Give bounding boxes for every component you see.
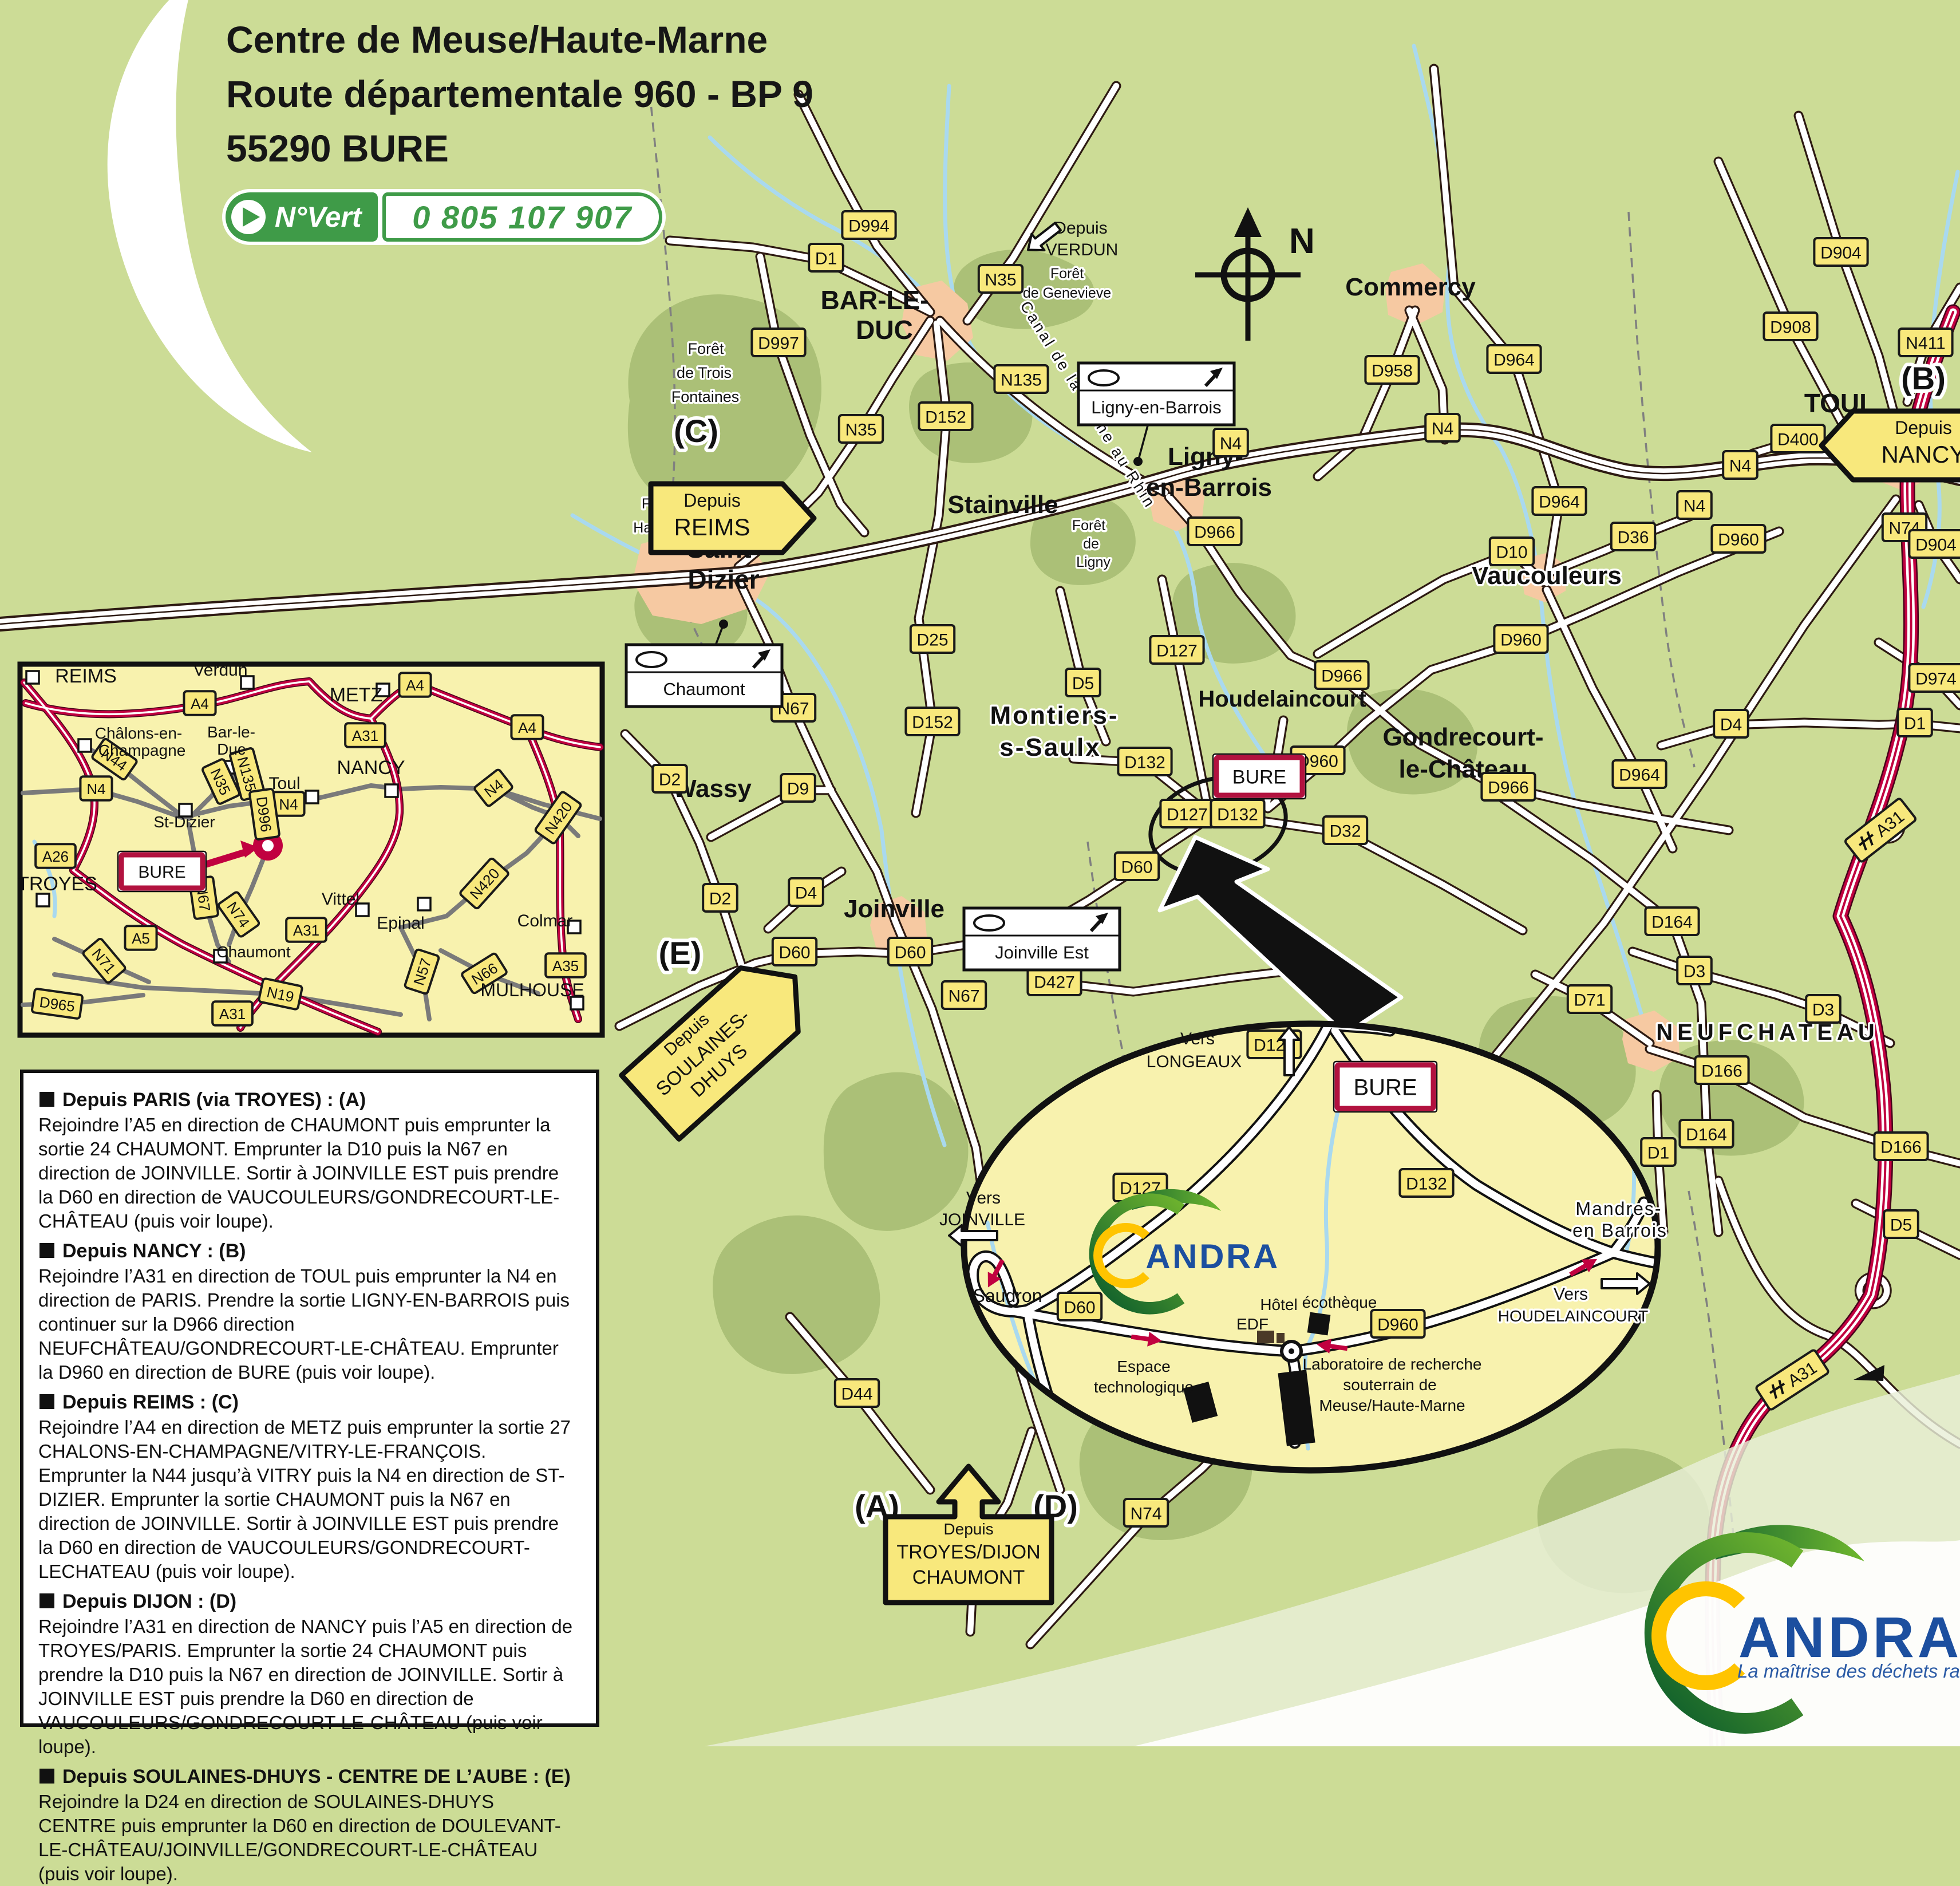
town-label: Montiers-: [990, 701, 1119, 729]
inset-town-label: NANCY: [337, 757, 405, 779]
road-shield-n4: N4: [1723, 451, 1757, 479]
map-poster: ANDRA: [0, 0, 1960, 1746]
directions-body-text: Rejoindre l’A31 en direction de TOUL pui…: [38, 1264, 573, 1384]
exit-sign-label: Ligny-en-Barrois: [1091, 397, 1221, 417]
road-shield-n35: N35: [839, 415, 883, 443]
depuis-sign-label: REIMS: [674, 514, 750, 540]
road-shield-d60: D60: [1058, 1293, 1101, 1320]
depuis-sign-label: Depuis: [1895, 417, 1952, 438]
road-shield-label: D966: [1488, 778, 1529, 797]
depuis-sign-label: TROYES/DIJON: [896, 1541, 1040, 1563]
road-shield-d2: D2: [703, 884, 737, 912]
road-shield-label: D127: [1167, 805, 1208, 824]
route-letter: (E): [659, 935, 702, 971]
inset-town-label: Toul: [268, 774, 300, 793]
road-shield-d132: D132: [1118, 748, 1171, 775]
road-shield-d958: D958: [1365, 356, 1418, 384]
road-shield-label: D152: [912, 713, 953, 732]
road-shield-n35: N35: [979, 265, 1022, 293]
green-number-badge: N°Vert 0 805 107 907: [222, 189, 666, 245]
road-shield-d164: D164: [1645, 908, 1698, 935]
inset-town-label: METZ: [330, 684, 383, 706]
inset-town-label: St-Dizier: [153, 813, 215, 831]
inset-town-label: Bar-le-: [207, 723, 255, 741]
road-shield-d996: D996: [250, 788, 280, 839]
road-shield-label: D9: [787, 779, 809, 798]
forest-label: Ligny: [1076, 554, 1111, 570]
inset-town-label: REIMS: [55, 665, 117, 687]
road-shield-d964: D964: [1487, 345, 1540, 373]
road-shield-a26: A26: [35, 844, 76, 868]
road-shield-label: D164: [1651, 913, 1693, 932]
road-shield-d5: D5: [1066, 669, 1100, 696]
road-shield-label: N35: [985, 270, 1016, 289]
inset-town-label: Châlons-en-: [95, 724, 183, 742]
road-shield-d5: D5: [1884, 1210, 1918, 1238]
town-label: Houdelaincourt: [1198, 686, 1366, 712]
road-shield-d9: D9: [781, 774, 815, 802]
road-shield-label: D44: [841, 1384, 872, 1403]
inset-map: A4A4A4A31A31A31A26A5A35N44N4N4N35N135D99…: [17, 661, 602, 1035]
road-shield-label: D60: [1064, 1298, 1095, 1317]
depuis-verdun-label: Depuis: [1054, 219, 1107, 238]
road-shield-label: D974: [1915, 669, 1957, 688]
road-shield-n4: N4: [1214, 429, 1248, 456]
town-label: Joinville: [844, 895, 945, 923]
road-shield-d127: D127: [1150, 636, 1203, 664]
depuis-sign: DepuisNANCY: [1821, 411, 1960, 480]
road-shield-n74: N74: [1124, 1499, 1168, 1526]
road-shield-d166: D166: [1874, 1133, 1927, 1160]
road-shield-n411: N411: [1899, 329, 1952, 356]
road-shield-d60: D60: [888, 938, 932, 965]
inset-town-label: Verdun: [193, 661, 247, 680]
road-shield-label: D5: [1072, 674, 1094, 693]
road-shield-d152: D152: [919, 403, 972, 430]
road-shield-d904: D904: [1814, 238, 1867, 266]
directions-body-text: Rejoindre l’A31 en direction de NANCY pu…: [38, 1615, 573, 1759]
forest-label: Forêt: [1050, 266, 1084, 282]
bullet-square-icon: [39, 1769, 54, 1784]
road-shield-label: N67: [948, 987, 979, 1005]
road-shield-label: A31: [352, 727, 378, 744]
road-shield-d400: D400: [1771, 425, 1824, 452]
loupe-label: EDF: [1236, 1315, 1269, 1333]
loupe-label: Espace: [1117, 1358, 1170, 1375]
road-shield-label: D997: [758, 334, 799, 353]
loupe-label: Mandres-: [1575, 1198, 1662, 1219]
road-shield-label: N74: [1130, 1504, 1161, 1523]
road-shield-label: D966: [1194, 523, 1235, 542]
directions-heading-text: Depuis SOULAINES-DHUYS - CENTRE DE L’AUB…: [62, 1765, 571, 1789]
road-shield-d132: D132: [1400, 1169, 1453, 1197]
road-shield-label: D71: [1574, 991, 1605, 1009]
depuis-sign-label: CHAUMONT: [912, 1567, 1025, 1588]
road-shield-label: D127: [1156, 641, 1198, 660]
town-label: BAR-LE-: [820, 285, 928, 315]
road-shield-n4: N4: [1425, 414, 1460, 441]
road-shield-label: D166: [1880, 1138, 1922, 1157]
road-shield-d164: D164: [1680, 1120, 1733, 1147]
road-shield-label: D3: [1684, 962, 1705, 981]
road-shield-d32: D32: [1323, 816, 1367, 844]
city-square: [78, 739, 91, 752]
town-label: Commercy: [1345, 273, 1476, 301]
city-square: [37, 894, 49, 906]
road-shield-label: D427: [1034, 973, 1075, 992]
road-shield-label: D964: [1493, 350, 1535, 369]
road-shield-label: D5: [1890, 1216, 1912, 1234]
road-shield-d997: D997: [752, 329, 805, 356]
andra-tagline: La maîtrise des déchets radioactifs: [1737, 1660, 1960, 1682]
loupe-label: souterrain de: [1343, 1376, 1436, 1394]
directions-section: Depuis NANCY : (B)Rejoindre l’A31 en dir…: [38, 1239, 573, 1384]
road-shield-label: D36: [1617, 528, 1649, 547]
loupe-label: Vers: [1554, 1285, 1588, 1304]
road-shield-label: D400: [1777, 430, 1819, 449]
loupe-label: JOINVILLE: [939, 1210, 1025, 1229]
road-shield-label: D132: [1406, 1174, 1447, 1193]
road-shield-d965: D965: [31, 989, 82, 1019]
road-shield-label: D3: [1812, 1000, 1834, 1019]
road-shield-label: D60: [1121, 858, 1152, 877]
bure-town-sign: BURE: [1334, 1062, 1437, 1112]
depuis-sign-label: Depuis: [943, 1520, 993, 1538]
loupe-label: LONGEAUX: [1147, 1052, 1242, 1071]
road-shield-label: D994: [848, 216, 890, 235]
road-shield-d60: D60: [773, 938, 816, 965]
road-shield-label: N4: [1684, 496, 1705, 515]
road-shield-d1: D1: [1641, 1138, 1676, 1166]
road-shield-d908: D908: [1764, 313, 1817, 340]
city-square: [26, 671, 39, 684]
town-label: Dizier: [687, 565, 759, 594]
road-shield-d966: D966: [1188, 518, 1241, 545]
depuis-verdun-label: VERDUN: [1046, 240, 1119, 259]
road-shield-d127: D127: [1160, 800, 1214, 827]
road-shield-d960: D960: [1712, 525, 1765, 553]
road-shield-label: N4: [1432, 419, 1453, 438]
roundabout-center: [1289, 1348, 1294, 1354]
road-shield-d960: D960: [1371, 1310, 1424, 1337]
title-line-3: 55290 BURE: [226, 121, 813, 176]
forest-label: de Genevieve: [1023, 285, 1111, 301]
city-square: [385, 784, 398, 797]
nvert-label-capsule: N°Vert: [226, 192, 378, 242]
road-shield-label: D152: [925, 408, 966, 427]
road-shield-label: D904: [1820, 243, 1862, 262]
inset-town-label: Colmar: [517, 912, 573, 930]
road-shield-d44: D44: [835, 1379, 879, 1407]
title-line-1: Centre de Meuse/Haute-Marne: [226, 13, 813, 67]
road-shield-d966: D966: [1481, 773, 1535, 800]
directions-section: Depuis SOULAINES-DHUYS - CENTRE DE L’AUB…: [38, 1765, 573, 1886]
road-shield-d1: D1: [809, 244, 843, 271]
bure-sign-label: BURE: [138, 863, 185, 882]
loupe-label: HOUDELAINCOURT: [1498, 1307, 1648, 1325]
road-shield-d994: D994: [842, 211, 895, 239]
road-shield-n4: N4: [272, 792, 304, 816]
inset-town-label: Vittel: [322, 890, 359, 909]
road-shield-n4: N4: [80, 776, 112, 800]
road-shield-d427: D427: [1028, 968, 1081, 995]
road-shield-label: D960: [1377, 1315, 1418, 1334]
directions-heading-text: Depuis REIMS : (C): [62, 1390, 239, 1414]
directions-heading-text: Depuis DIJON : (D): [62, 1589, 236, 1613]
bullet-square-icon: [39, 1243, 54, 1258]
road-shield-label: D25: [916, 630, 948, 649]
directions-heading: Depuis SOULAINES-DHUYS - CENTRE DE L’AUB…: [38, 1765, 573, 1789]
depuis-sign-label: Depuis: [683, 490, 741, 511]
road-shield-label: D908: [1770, 318, 1811, 337]
road-shield-label: D2: [709, 889, 731, 908]
town-label: NEUFCHATEAU: [1656, 1020, 1879, 1045]
road-shield-label: D960: [1500, 630, 1542, 649]
road-shield-label: D164: [1686, 1125, 1727, 1144]
road-shield-d132: D132: [1211, 800, 1264, 827]
road-shield-a5: A5: [125, 926, 156, 950]
bullet-square-icon: [39, 1593, 54, 1608]
road-shield-label: D32: [1329, 822, 1361, 841]
directions-panel: Depuis PARIS (via TROYES) : (A)Rejoindre…: [20, 1070, 599, 1727]
road-shield-label: D2: [659, 770, 681, 789]
bure-sign-label: BURE: [1232, 766, 1286, 788]
road-shield-d60: D60: [1115, 853, 1159, 880]
road-shield-d4: D4: [789, 878, 823, 906]
road-shield-label: A4: [406, 677, 424, 694]
forest-label: Forêt: [687, 340, 724, 357]
exit-sign-label: Joinville Est: [995, 942, 1089, 962]
road-shield-d3: D3: [1806, 995, 1840, 1023]
bullet-square-icon: [39, 1092, 54, 1107]
directions-body-text: Rejoindre la D24 en direction de SOULAIN…: [38, 1790, 573, 1886]
road-shield-d36: D36: [1611, 523, 1655, 550]
town-label: DUC: [856, 315, 913, 345]
road-shield-n135: N135: [994, 365, 1048, 393]
inset-town-label: Epinal: [377, 914, 424, 933]
route-letter: (B): [1901, 360, 1946, 396]
road-shield-label: D60: [779, 943, 810, 962]
inset-town-label: MULHOUSE: [480, 980, 584, 1000]
inset-town-label: Duc: [217, 740, 246, 758]
directions-section: Depuis PARIS (via TROYES) : (A)Rejoindre…: [38, 1088, 573, 1233]
nvert-label: N°Vert: [275, 200, 362, 234]
play-icon: [231, 200, 266, 234]
directions-heading: Depuis PARIS (via TROYES) : (A): [38, 1088, 573, 1112]
road-shield-label: N411: [1906, 334, 1946, 353]
road-shield-d964: D964: [1532, 487, 1586, 515]
road-shield-label: A5: [132, 930, 150, 947]
road-shield-d974: D974: [1909, 664, 1960, 692]
town-label: Gondrecourt-: [1382, 723, 1543, 751]
road-shield-label: D964: [1619, 766, 1660, 784]
road-shield-label: D132: [1217, 805, 1258, 824]
directions-heading: Depuis REIMS : (C): [38, 1390, 573, 1414]
town-label: Stainville: [947, 491, 1058, 519]
directions-heading-text: Depuis NANCY : (B): [62, 1239, 246, 1263]
road-shield-label: D60: [894, 943, 926, 962]
depuis-sign: DepuisREIMS: [651, 484, 814, 553]
road-shield-label: D166: [1701, 1062, 1742, 1080]
directions-heading-text: Depuis PARIS (via TROYES) : (A): [62, 1088, 366, 1112]
directions-heading: Depuis DIJON : (D): [38, 1589, 573, 1613]
road-shield-d25: D25: [911, 625, 954, 653]
bullet-square-icon: [39, 1394, 54, 1409]
road-shield-label: A35: [552, 957, 579, 974]
forest-label: de: [1083, 536, 1099, 552]
directions-body-text: Rejoindre l’A4 en direction de METZ puis…: [38, 1415, 573, 1584]
road-shield-label: N135: [1001, 370, 1042, 389]
road-shield-label: D10: [1496, 543, 1527, 562]
road-shield-d1: D1: [1898, 709, 1932, 736]
inset-town-label: TROYES: [17, 873, 97, 895]
route-letter: (C): [674, 413, 718, 449]
loupe-label: Vers: [966, 1189, 1001, 1208]
road-shield-n4: N4: [1677, 491, 1712, 519]
loupe-label: en Barrois: [1572, 1220, 1667, 1241]
road-shield-d10: D10: [1490, 538, 1534, 565]
road-shield-label: D4: [1720, 715, 1742, 734]
exit-sign-joinville-est: Joinville Est: [964, 908, 1120, 970]
road-shield-label: D958: [1372, 361, 1413, 380]
road-shield-a31: A31: [286, 918, 326, 942]
road-shield-label: D1: [815, 249, 837, 268]
road-shield-d2: D2: [653, 765, 687, 792]
road-shield-d4: D4: [1714, 710, 1748, 737]
road-shield-label: D1: [1904, 714, 1926, 733]
loupe-label: Vers: [1180, 1029, 1215, 1048]
bure-bullseye-center: [262, 840, 274, 851]
road-shield-label: A31: [219, 1005, 246, 1023]
loupe-label: technologique: [1094, 1378, 1194, 1396]
road-shield-label: D966: [1321, 666, 1362, 685]
directions-section: Depuis DIJON : (D)Rejoindre l’A31 en dir…: [38, 1589, 573, 1759]
road-shield-a31: A31: [212, 1001, 252, 1025]
nvert-number: 0 805 107 907: [382, 192, 662, 242]
road-shield-label: D132: [1124, 753, 1165, 772]
town-label: s-Saulx: [999, 733, 1101, 761]
road-shield-a4: A4: [399, 673, 430, 697]
directions-body-text: Rejoindre l’A5 en direction de CHAUMONT …: [38, 1113, 573, 1233]
directions-heading: Depuis NANCY : (B): [38, 1239, 573, 1263]
road-shield-d166: D166: [1695, 1056, 1748, 1084]
road-shield-label: D1: [1647, 1143, 1669, 1162]
road-shield-n67: N67: [942, 981, 986, 1009]
compass-north-label: N: [1289, 222, 1315, 261]
depuis-sign-label: NANCY: [1881, 441, 1960, 468]
bure-sign-label: BURE: [1353, 1075, 1417, 1100]
road-shield-d3: D3: [1677, 957, 1712, 984]
bure-town-sign: BURE: [118, 851, 206, 891]
road-shield-label: N35: [845, 420, 876, 439]
road-shield-label: D4: [795, 883, 817, 902]
road-shield-label: D964: [1539, 492, 1580, 511]
road-shield-label: A4: [518, 719, 536, 736]
road-shield-label: N4: [1729, 456, 1751, 475]
road-shield-label: A26: [42, 848, 69, 865]
loupe-label: Saudron: [973, 1285, 1042, 1306]
road-shield-d71: D71: [1568, 985, 1611, 1013]
road-shield-d152: D152: [906, 708, 959, 735]
loupe-label: Meuse/Haute-Marne: [1319, 1396, 1465, 1414]
loupe-label: Laboratoire de recherche: [1303, 1355, 1482, 1373]
forest-label: Fontaines: [671, 388, 740, 405]
exit-sign-label: Chaumont: [663, 679, 745, 699]
directions-section: Depuis REIMS : (C)Rejoindre l’A4 en dire…: [38, 1390, 573, 1584]
road-shield-a35: A35: [546, 953, 586, 977]
bure-town-sign: BURE: [1213, 754, 1306, 799]
loupe-label: Hôtel: [1260, 1296, 1297, 1313]
inset-town-label: Chaumont: [216, 943, 290, 961]
road-shield-a4: A4: [184, 691, 215, 715]
road-shield-label: N4: [1220, 434, 1242, 453]
city-square: [306, 791, 318, 803]
page-title: Centre de Meuse/Haute-Marne Route départ…: [226, 13, 813, 176]
road-shield-label: N4: [279, 796, 298, 813]
road-shield-d904: D904: [1909, 530, 1960, 558]
forest-label: de Trois: [677, 364, 732, 381]
loupe-label: écothèque: [1302, 1293, 1377, 1311]
road-shield-label: D960: [1718, 530, 1759, 549]
road-shield-label: A4: [191, 695, 209, 712]
road-shield-d960: D960: [1494, 625, 1547, 653]
road-shield-label: D904: [1915, 535, 1957, 554]
road-shield-label: N4: [86, 780, 105, 798]
road-shield-a4: A4: [511, 715, 543, 739]
road-shield-d964: D964: [1613, 760, 1666, 788]
road-shield-label: A31: [293, 922, 319, 939]
inset-town-label: Champagne: [98, 741, 186, 759]
forest-label: Forêt: [1072, 518, 1105, 534]
city-square: [418, 898, 430, 910]
town-label: en-Barrois: [1146, 474, 1272, 502]
road-shield-d966: D966: [1315, 661, 1368, 689]
title-line-2: Route départementale 960 - BP 9: [226, 67, 813, 121]
road-shield-a31: A31: [345, 723, 385, 747]
